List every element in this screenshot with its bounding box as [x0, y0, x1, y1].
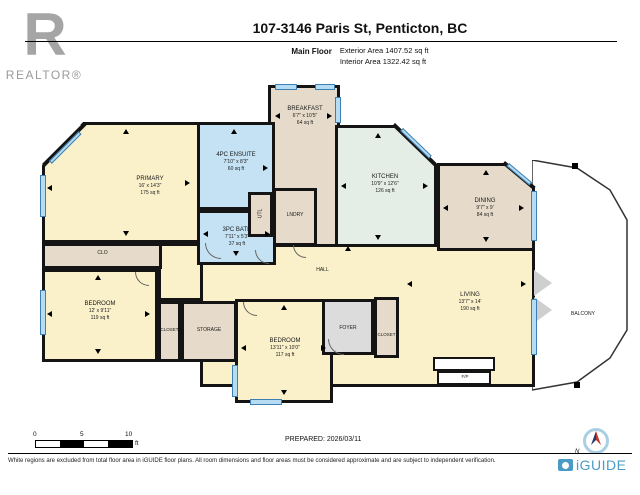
- window-bedroom2-icon: [250, 399, 282, 405]
- room-clo-label: CLO: [75, 250, 130, 257]
- floor-label: Main Floor: [291, 46, 331, 68]
- fireplace-label: F/P: [438, 374, 492, 380]
- measure-arrow-icon: [375, 133, 381, 138]
- measure-arrow-icon: [281, 305, 287, 310]
- fireplace-shelf: [433, 357, 495, 371]
- measure-arrow-icon: [407, 281, 412, 287]
- measure-arrow-icon: [375, 235, 381, 240]
- room-storage-label: STORAGE: [183, 327, 235, 334]
- scale-tick-10: 10: [125, 431, 132, 438]
- room-bedroom1-label: BEDROOM 12' x 9'11" 119 sq ft: [55, 300, 145, 322]
- footer-divider: [8, 453, 632, 454]
- window-living-icon: [531, 299, 537, 355]
- measure-arrow-icon: [231, 129, 237, 134]
- room-ensuite-label: 4PC ENSUITE 7'10" x 8'3" 60 sq ft: [201, 151, 271, 173]
- realtor-logo-text: REALTOR®: [2, 68, 86, 82]
- disclaimer-text: White regions are excluded from total fl…: [8, 458, 548, 464]
- measure-arrow-icon: [145, 311, 150, 317]
- window-primary-icon: [40, 175, 46, 217]
- measure-arrow-icon: [521, 281, 526, 287]
- scale-tick-0: 0: [33, 431, 37, 438]
- page-title: 107-3146 Paris St, Penticton, BC: [80, 20, 640, 36]
- compass-north-label: N: [575, 449, 579, 455]
- room-hall-label: HALL: [300, 267, 345, 274]
- scale-bar: 0 5 10 ft: [35, 431, 175, 451]
- window-breakfast-icon: [315, 84, 335, 90]
- room-bath-label: 3PC BATH 7'11" x 5'3" 37 sq ft: [198, 226, 276, 248]
- window-breakfast-icon: [275, 84, 297, 90]
- measure-arrow-icon: [47, 185, 52, 191]
- scale-unit-label: ft: [135, 440, 139, 447]
- floor-plan: PRIMARY 16' x 14'3" 175 sq ft 4PC ENSUIT…: [35, 85, 630, 420]
- room-dining-label: DINING 9'7" x 9' 84 sq ft: [445, 197, 525, 219]
- measure-arrow-icon: [123, 129, 129, 134]
- window-bedroom2-icon: [232, 365, 238, 397]
- interior-area-text: Interior Area 1322.42 sq ft: [340, 57, 429, 68]
- prepared-date: PREPARED: 2026/03/11: [285, 436, 361, 443]
- room-foyer-label: FOYER: [327, 325, 369, 332]
- room-closet2-label: CLOSET: [376, 332, 397, 338]
- measure-arrow-icon: [123, 231, 129, 236]
- measure-arrow-icon: [233, 251, 239, 256]
- room-breakfast-label: BREAKFAST 6'7" x 10'5" 64 sq ft: [273, 105, 337, 127]
- scale-tick-5: 5: [80, 431, 84, 438]
- measure-arrow-icon: [483, 170, 489, 175]
- room-kitchen-label: KITCHEN 10'9" x 12'6" 126 sq ft: [345, 173, 425, 195]
- room-closet-2: [374, 297, 399, 358]
- window-dining-icon: [531, 191, 537, 241]
- room-closet1-label: CLOSET: [159, 327, 180, 333]
- floor-summary: Main Floor Exterior Area 1407.52 sq ft I…: [160, 46, 560, 68]
- scale-bar-segments: [35, 440, 133, 448]
- iguide-camera-icon: [558, 459, 573, 471]
- measure-arrow-icon: [281, 390, 287, 395]
- window-bedroom1-icon: [40, 290, 46, 335]
- room-laundry-label: LNDRY: [275, 212, 315, 219]
- room-balcony-label: BALCONY: [543, 311, 623, 318]
- measure-arrow-icon: [95, 275, 101, 280]
- measure-arrow-icon: [47, 311, 52, 317]
- measure-arrow-icon: [95, 349, 101, 354]
- room-primary-label: PRIMARY 16' x 14'3" 175 sq ft: [105, 175, 195, 197]
- room-living-label: LIVING 13'7" x 14' 190 sq ft: [415, 291, 525, 313]
- iguide-brand-text: iGUIDE: [576, 457, 626, 473]
- measure-arrow-icon: [345, 246, 351, 251]
- title-divider: [25, 41, 617, 42]
- exterior-area-text: Exterior Area 1407.52 sq ft: [340, 46, 429, 57]
- iguide-logo: iGUIDE: [558, 457, 626, 473]
- room-bedroom2-label: BEDROOM 13'11" x 10'0" 117 sq ft: [240, 337, 330, 359]
- realtor-block-r-logo: R: [12, 2, 78, 68]
- balcony-outline: [532, 160, 632, 394]
- room-utility-label: UTL: [258, 201, 265, 225]
- measure-arrow-icon: [483, 237, 489, 242]
